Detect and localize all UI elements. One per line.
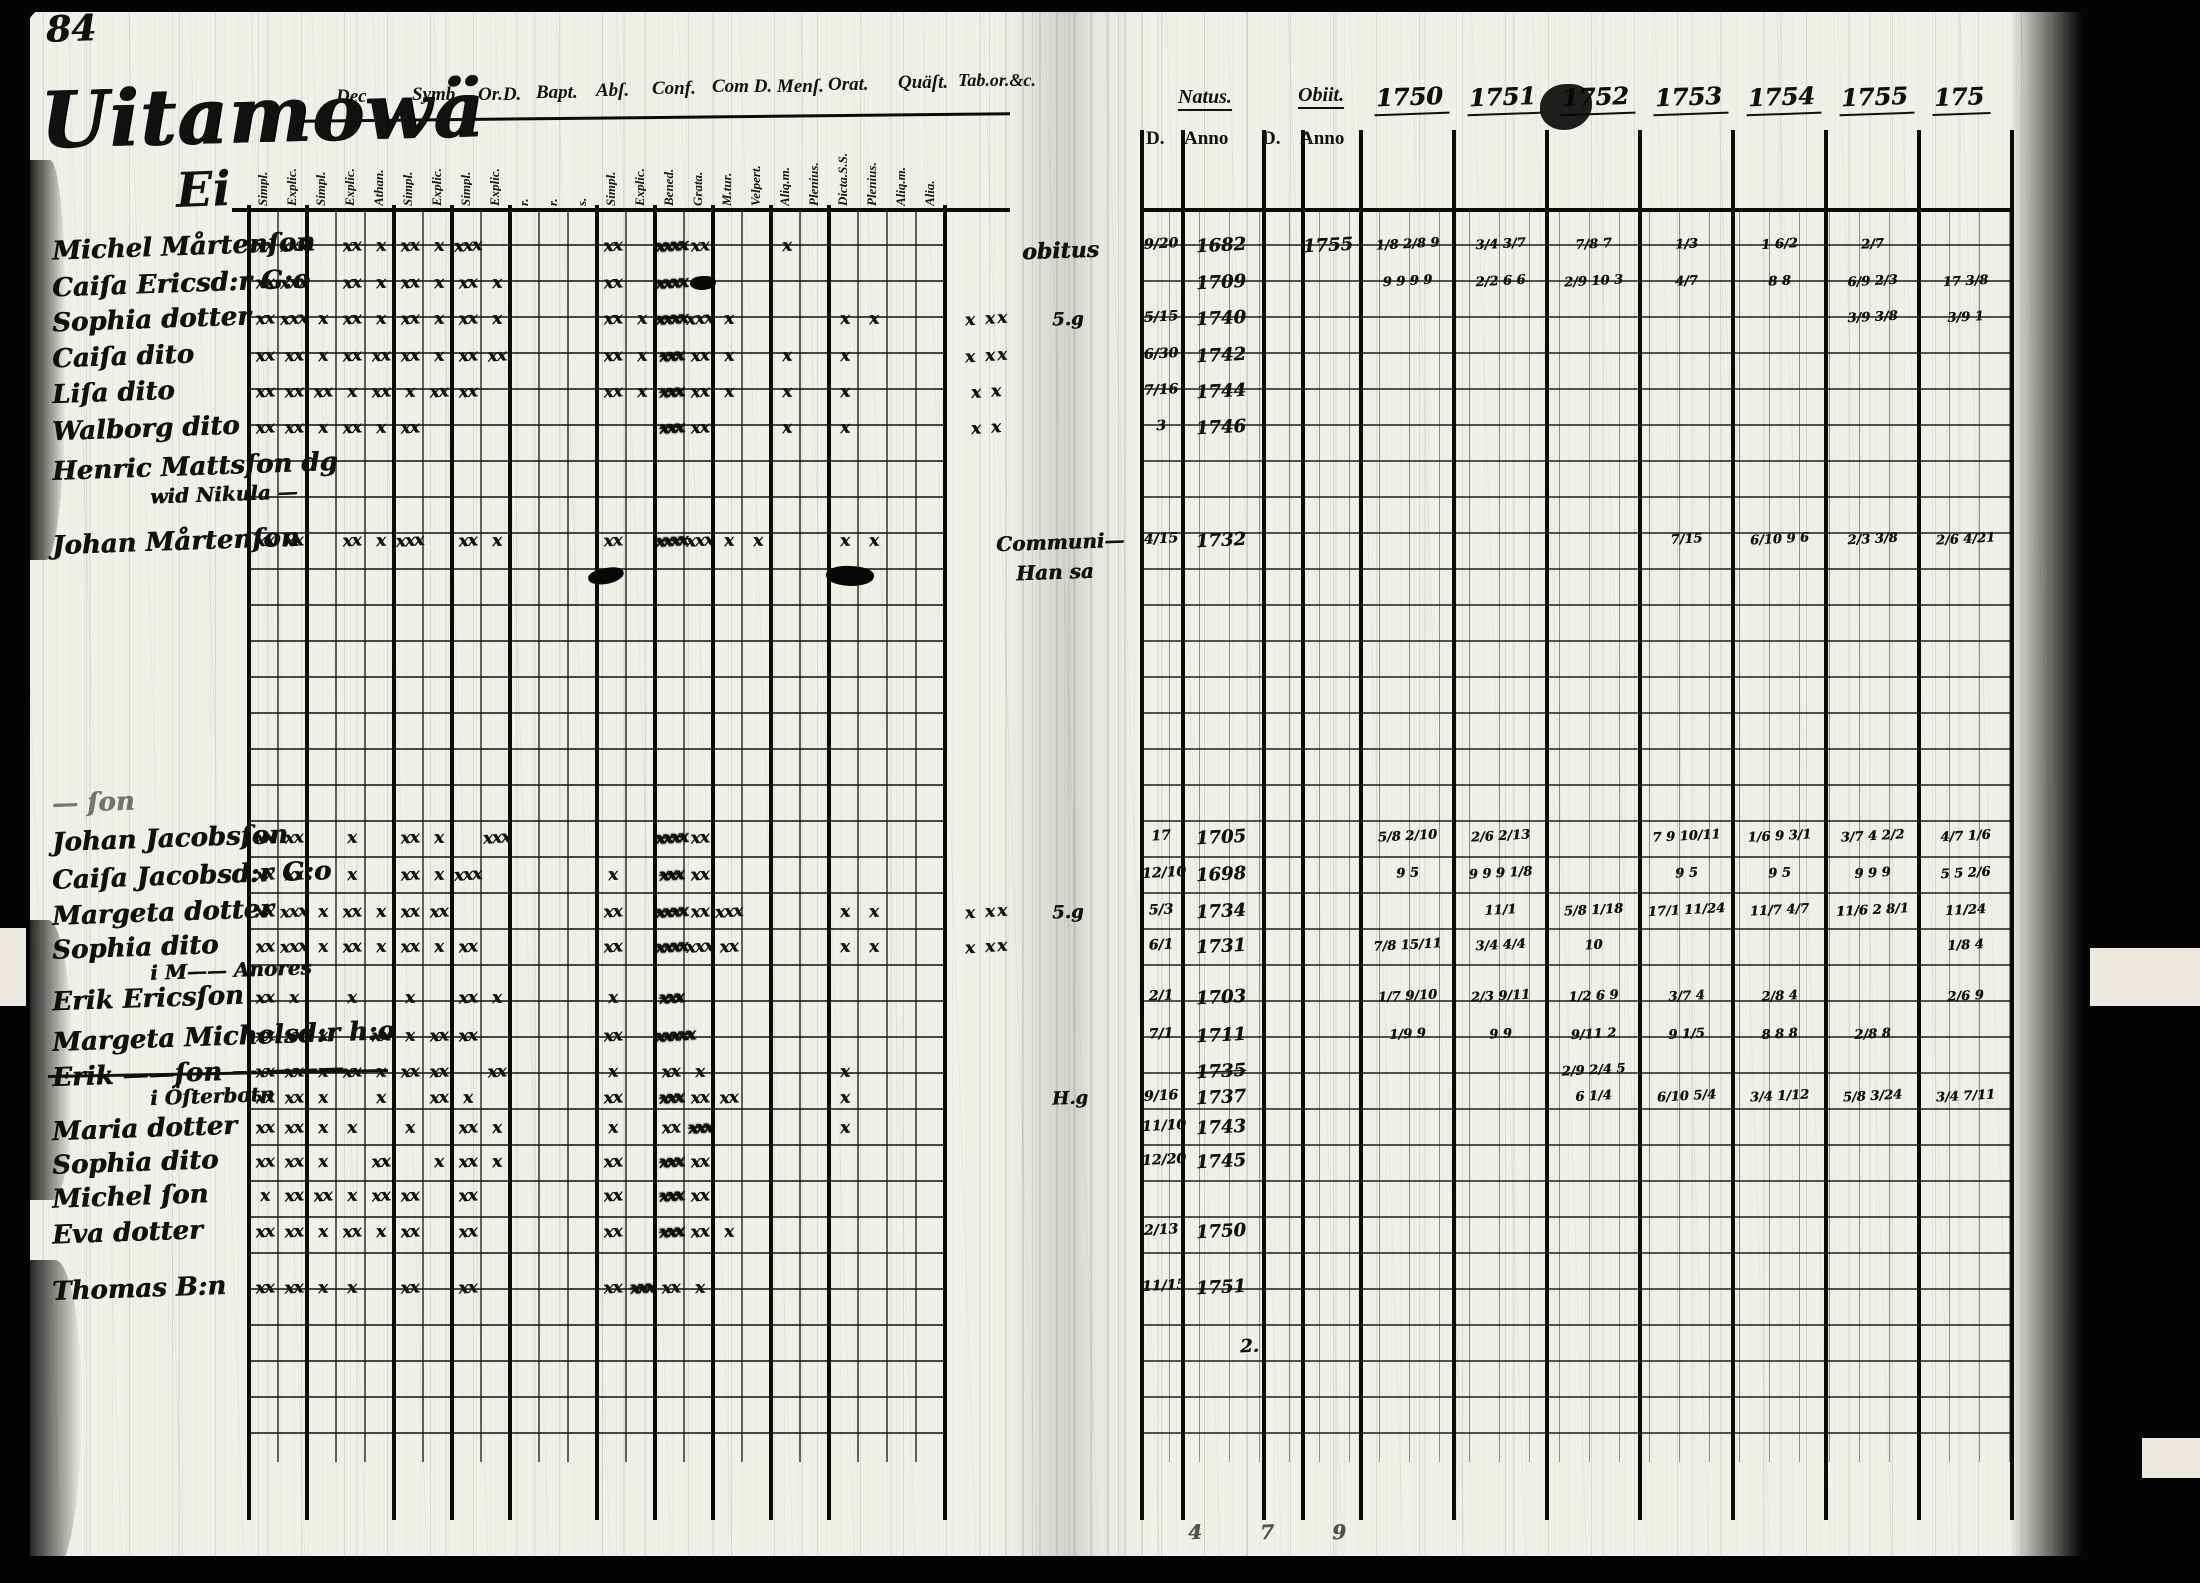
cross-marks: x xyxy=(393,1025,425,1047)
cross-marks: x xyxy=(857,530,889,552)
grid-rule-vertical xyxy=(1731,130,1735,1520)
header-obiit-anno: Anno xyxy=(1300,128,1344,150)
cross-marks: xxx xyxy=(277,308,309,330)
cross-marks: xx xyxy=(364,381,396,403)
page-number: 84 xyxy=(45,7,97,51)
natus-day: 11/10 xyxy=(1142,1117,1181,1135)
cross-marks: x xyxy=(364,272,396,294)
cross-marks: x xyxy=(306,1277,338,1299)
grid-rule-vertical xyxy=(1140,130,1144,1520)
cross-marks: x xyxy=(828,936,860,958)
film-border-bottom xyxy=(0,1556,2200,1583)
cross-marks: x xyxy=(683,1061,715,1083)
cross-marks: xxx xyxy=(277,235,309,257)
record-name: wid Nikula — xyxy=(150,479,298,508)
cross-marks: xx xyxy=(335,1221,367,1243)
cross-marks: x xyxy=(306,1221,338,1243)
cross-marks: x xyxy=(828,901,860,923)
grid-rule-vertical xyxy=(1301,130,1305,1520)
cross-marks: xx xyxy=(393,1061,425,1083)
natus-day: 2/1 xyxy=(1142,987,1181,1005)
cross-marks: xx xyxy=(654,1277,686,1299)
subheader-explic: Explic. xyxy=(430,106,443,206)
header-natus: Natus. xyxy=(1178,86,1232,111)
subheader-aliqm: Aliq.m. xyxy=(778,106,791,206)
cross-marks: xx xyxy=(248,1087,280,1109)
cross-marks: xx xyxy=(683,1151,715,1173)
cross-marks: xx xyxy=(654,1061,686,1083)
obiit-year: 1755 xyxy=(1299,234,1356,258)
cross-marks: x xyxy=(828,381,860,403)
cross-marks: x xyxy=(306,1151,338,1173)
year-header-175: 175 xyxy=(1931,81,1990,116)
grid-rule-vertical xyxy=(1181,130,1185,1520)
year-header-1751: 1751 xyxy=(1466,81,1542,117)
cross-marks: x xyxy=(741,530,773,552)
cross-marks: xx xyxy=(451,272,483,294)
cross-marks: x xyxy=(364,417,396,439)
header-natus-anno: Anno xyxy=(1184,128,1228,150)
cross-marks: xx xyxy=(683,901,715,923)
cross-marks: xxx xyxy=(654,381,686,403)
cross-marks: xx xyxy=(364,345,396,367)
cross-marks: x xyxy=(422,235,454,257)
bottom-margin-mark: 4 xyxy=(1188,1520,1203,1544)
cross-marks: x xyxy=(306,1117,338,1139)
subheader-mtur: M.tur. xyxy=(720,106,733,206)
cross-marks: x xyxy=(596,864,628,886)
cross-marks: xx xyxy=(683,1087,715,1109)
cross-marks: xx xyxy=(683,1185,715,1207)
cross-marks: x xyxy=(422,936,454,958)
cross-marks: x xyxy=(770,345,802,367)
header-ord: Or.D. xyxy=(478,84,521,106)
cross-marks: xxxx xyxy=(654,272,686,294)
cross-marks: xxx xyxy=(480,827,512,849)
natus-day: 5/15 xyxy=(1142,308,1181,326)
communion-note-line1: Communi— xyxy=(996,528,1125,556)
cross-marks: x xyxy=(306,308,338,330)
record-name: — ſon xyxy=(52,787,135,820)
cross-marks: x xyxy=(857,901,889,923)
record-name: Thomas B:n xyxy=(52,1271,227,1307)
subheader-dictass: Dicta.S.S. xyxy=(836,106,849,206)
cross-marks: x xyxy=(306,901,338,923)
cross-marks: x xyxy=(335,987,367,1009)
cross-marks: xx xyxy=(248,936,280,958)
cross-marks: xx xyxy=(335,417,367,439)
cross-marks: xx xyxy=(277,1061,309,1083)
grid-rule-horizontal xyxy=(232,208,1010,212)
cross-marks: xx xyxy=(480,1061,512,1083)
cross-marks: x xyxy=(335,827,367,849)
cross-marks: x xyxy=(364,1221,396,1243)
cross-marks: x xyxy=(422,272,454,294)
cross-marks: xxx xyxy=(451,235,483,257)
natus-year: 1751 xyxy=(1184,1275,1259,1300)
cross-marks: x xyxy=(306,1061,338,1083)
natus-day: 4/15 xyxy=(1142,530,1181,548)
cross-marks: x xyxy=(596,1061,628,1083)
film-border-right xyxy=(2086,0,2200,1583)
grid-rule-vertical xyxy=(1262,130,1266,1520)
cross-marks: xx xyxy=(683,827,715,849)
natus-year: 1745 xyxy=(1184,1149,1259,1174)
cross-marks: x xyxy=(306,1087,338,1109)
cross-marks: xx xyxy=(248,987,280,1009)
cross-marks: xx xyxy=(277,1025,309,1047)
cross-marks: xx xyxy=(277,417,309,439)
cross-marks: x xyxy=(306,345,338,367)
cross-marks: x xyxy=(712,345,744,367)
cross-marks: xxxx xyxy=(654,901,686,923)
cross-marks: xx xyxy=(248,530,280,552)
natus-year: 1711 xyxy=(1184,1023,1259,1048)
subheader-alia: Alia. xyxy=(923,106,936,206)
cross-marks: xx xyxy=(335,272,367,294)
header-tabor: Tab.or.&c. xyxy=(958,70,1036,91)
natus-day: 3 xyxy=(1142,417,1181,435)
cross-marks: x xyxy=(364,235,396,257)
cross-marks: xx xyxy=(248,1117,280,1139)
cross-marks: xx xyxy=(451,987,483,1009)
subheader-explic: Explic. xyxy=(343,106,356,206)
cross-marks: x xyxy=(480,272,512,294)
film-notch xyxy=(0,928,26,1006)
cross-marks: xxxx xyxy=(654,530,686,552)
cross-marks: xx xyxy=(654,1117,686,1139)
grid-rule-vertical xyxy=(508,205,512,1520)
natus-year: 1703 xyxy=(1184,985,1259,1010)
natus-year: 1734 xyxy=(1184,899,1259,924)
cross-marks: x xyxy=(480,308,512,330)
cross-marks: xxxx xyxy=(654,235,686,257)
cross-marks: xx xyxy=(596,1151,628,1173)
cross-marks: xx xyxy=(393,864,425,886)
cross-marks: xx xyxy=(393,901,425,923)
margin-note: H.g xyxy=(1052,1087,1089,1109)
year-header-1754: 1754 xyxy=(1745,81,1821,117)
cross-marks: xx xyxy=(451,1185,483,1207)
bottom-margin-mark: 7 xyxy=(1260,1520,1275,1544)
obiit-note: obitus xyxy=(1022,237,1100,266)
cross-marks: xx xyxy=(277,1277,309,1299)
cross-marks: xx xyxy=(683,864,715,886)
subheader-explic: Explic. xyxy=(633,106,646,206)
cross-marks: x xyxy=(712,1221,744,1243)
cross-marks: x xyxy=(596,1117,628,1139)
cross-marks: xxx xyxy=(654,987,686,1009)
cross-marks: x xyxy=(828,417,860,439)
cross-marks: xx xyxy=(712,936,744,958)
cross-marks: xx xyxy=(596,235,628,257)
cross-marks: xx xyxy=(596,1277,628,1299)
cross-marks: xx xyxy=(393,345,425,367)
cross-marks: xx xyxy=(335,235,367,257)
subheader-simpl: Simpl. xyxy=(604,106,617,206)
cross-marks: xx xyxy=(335,901,367,923)
natus-day: 12/20 xyxy=(1142,1151,1181,1169)
subheader-velpert: Velpert. xyxy=(749,106,762,206)
film-border-left xyxy=(0,0,30,1583)
cross-marks: x xyxy=(335,1185,367,1207)
microfilm-scan: Dec. Symb. Or.D. Bapt. Abſ. Conf. Com D.… xyxy=(0,0,2200,1583)
natus-year: 1746 xyxy=(1184,415,1259,440)
cross-marks: x xyxy=(306,417,338,439)
cross-marks: x xyxy=(364,901,396,923)
cross-marks: x xyxy=(393,381,425,403)
cross-marks: xx xyxy=(248,1061,280,1083)
cross-marks: xx xyxy=(248,1025,280,1047)
cross-marks: xx xyxy=(248,827,280,849)
cross-marks: xx xyxy=(277,1151,309,1173)
cross-marks: x xyxy=(625,308,657,330)
cross-marks: x xyxy=(625,345,657,367)
natus-year: 1750 xyxy=(1184,1219,1259,1244)
natus-year: 1731 xyxy=(1184,934,1259,959)
year-header-1750: 1750 xyxy=(1373,81,1449,117)
cross-marks: x xyxy=(480,530,512,552)
natus-day: 7/16 xyxy=(1142,381,1181,399)
cross-marks: x xyxy=(422,864,454,886)
cross-marks: x xyxy=(422,345,454,367)
cross-marks: xx xyxy=(335,530,367,552)
cross-marks: xx xyxy=(451,381,483,403)
cross-marks: x xyxy=(770,235,802,257)
cross-marks: xx xyxy=(277,1185,309,1207)
natus-day: 6/1 xyxy=(1142,936,1181,954)
page-title-line2: Ei xyxy=(175,161,232,219)
cross-marks: x xyxy=(364,1087,396,1109)
cross-marks: xx xyxy=(393,827,425,849)
cross-marks: x xyxy=(335,1277,367,1299)
cross-marks: xx xyxy=(422,1061,454,1083)
cross-marks: x xyxy=(857,308,889,330)
grid-rule-vertical xyxy=(1638,130,1642,1520)
cross-marks: xx xyxy=(306,381,338,403)
cross-marks: xx xyxy=(277,1087,309,1109)
cross-marks: x xyxy=(828,1061,860,1083)
cross-marks: xx xyxy=(335,345,367,367)
subheader-bened: Bened. xyxy=(662,106,675,206)
cross-marks: x xyxy=(364,1061,396,1083)
film-notch xyxy=(2090,948,2200,1006)
subheader-explic: Explic. xyxy=(285,106,298,206)
natus-day: 9/16 xyxy=(1142,1087,1181,1105)
header-obiit: Obiit. xyxy=(1298,84,1344,109)
cross-marks: x xyxy=(625,381,657,403)
natus-year: 1737 xyxy=(1184,1085,1259,1110)
cross-marks: xxx xyxy=(277,901,309,923)
cross-marks: x xyxy=(828,530,860,552)
natus-year: 1740 xyxy=(1184,306,1259,331)
subheader-plenius: Plenius. xyxy=(865,106,878,206)
grid-rule-horizontal xyxy=(1140,208,2014,212)
cross-marks: x xyxy=(306,1025,338,1047)
cross-marks: x xyxy=(277,987,309,1009)
subheader-s: s. xyxy=(575,106,588,206)
grid-rule-vertical xyxy=(1545,130,1549,1520)
cross-marks: xx xyxy=(596,1025,628,1047)
natus-year: 1732 xyxy=(1184,528,1259,553)
natus-day: 17 xyxy=(1142,827,1181,845)
film-notch xyxy=(2142,1438,2200,1478)
cross-marks: x xyxy=(335,381,367,403)
cross-marks: xx xyxy=(364,1185,396,1207)
cross-marks: xx xyxy=(596,1185,628,1207)
natus-day: 2/13 xyxy=(1142,1221,1181,1239)
record-name: Eva dotter xyxy=(52,1215,204,1250)
cross-marks: xx xyxy=(683,345,715,367)
cross-marks: xx xyxy=(393,308,425,330)
cross-marks: x xyxy=(364,936,396,958)
natus-day: 5/3 xyxy=(1142,901,1181,919)
cross-marks: xxx xyxy=(683,936,715,958)
natus-year: 1742 xyxy=(1184,343,1259,368)
cross-marks: xx xyxy=(712,1087,744,1109)
cross-marks: x xyxy=(712,530,744,552)
natus-day: 6/30 xyxy=(1142,345,1181,363)
cross-marks: xx xyxy=(277,381,309,403)
grid-rule-vertical xyxy=(943,205,947,1520)
cross-marks: xxxxx xyxy=(654,1025,686,1047)
cross-marks: x xyxy=(828,308,860,330)
cross-marks: xx xyxy=(451,1151,483,1173)
cross-marks: xx xyxy=(422,1087,454,1109)
natus-year: 1698 xyxy=(1184,862,1259,887)
cross-marks: x xyxy=(422,827,454,849)
cross-marks: x xyxy=(393,1117,425,1139)
record-name: Caiſa dito xyxy=(52,340,195,375)
record-name: Liſa dito xyxy=(52,376,176,410)
cross-marks: xx xyxy=(248,381,280,403)
cross-marks: xx xyxy=(451,530,483,552)
cross-marks: xx xyxy=(248,864,280,886)
cross-marks: x xyxy=(770,381,802,403)
cross-marks: xx xyxy=(451,345,483,367)
cross-marks: xx xyxy=(451,1221,483,1243)
margin-note: 5.g xyxy=(1052,308,1084,330)
natus-day: 7/1 xyxy=(1142,1025,1181,1043)
cross-marks: xxx xyxy=(683,530,715,552)
cross-marks: x xyxy=(422,308,454,330)
cross-marks: xx xyxy=(683,381,715,403)
subheader-simpl: Simpl. xyxy=(256,106,269,206)
cross-marks: xx xyxy=(277,530,309,552)
cross-marks: xx xyxy=(683,235,715,257)
cross-marks: x xyxy=(683,1277,715,1299)
cross-marks: xx xyxy=(248,308,280,330)
header-obiit-d: D. xyxy=(1262,128,1280,150)
cross-marks: x xyxy=(596,987,628,1009)
cross-marks: xx xyxy=(393,235,425,257)
cross-marks: xx xyxy=(248,417,280,439)
grid-rule-vertical xyxy=(1917,130,1921,1520)
cross-marks: xx xyxy=(335,1061,367,1083)
cross-marks: xx xyxy=(596,381,628,403)
header-natus-d: D. xyxy=(1146,128,1164,150)
cross-marks: xxxx xyxy=(654,936,686,958)
cross-marks: xx xyxy=(422,1025,454,1047)
cross-marks: xx xyxy=(248,1151,280,1173)
cross-marks: xx xyxy=(422,901,454,923)
cross-marks: x xyxy=(451,1087,483,1109)
cross-marks: xx xyxy=(451,308,483,330)
cross-marks: xx xyxy=(277,827,309,849)
cross-marks: x xyxy=(335,1117,367,1139)
subheader-explic: Explic. xyxy=(488,106,501,206)
stray-mark: 2. xyxy=(1240,1336,1260,1358)
cross-marks: xxxx xyxy=(654,827,686,849)
cross-marks: x xyxy=(712,308,744,330)
cross-marks: xxx xyxy=(712,901,744,923)
cross-marks: xx xyxy=(335,936,367,958)
cross-marks: xxx xyxy=(683,308,715,330)
cross-marks: xx xyxy=(596,1087,628,1109)
cross-marks: xxx xyxy=(654,1087,686,1109)
cross-marks: xxx xyxy=(683,1117,715,1139)
cross-marks: x xyxy=(770,417,802,439)
cross-marks: xx xyxy=(277,1221,309,1243)
cross-marks: xx xyxy=(393,417,425,439)
cross-marks: xxx xyxy=(451,864,483,886)
subheader-simpl: Simpl. xyxy=(459,106,472,206)
cross-marks: xx xyxy=(335,308,367,330)
subheader-simpl: Simpl. xyxy=(314,106,327,206)
cross-marks: xx xyxy=(422,381,454,403)
cross-marks: xx xyxy=(596,345,628,367)
cross-marks: xx xyxy=(451,1277,483,1299)
subheader-plenius: Plenius. xyxy=(807,106,820,206)
natus-day: 11/15 xyxy=(1142,1277,1181,1295)
communion-note-line2: Han sa xyxy=(1016,559,1094,586)
cross-marks: x xyxy=(828,345,860,367)
cross-marks: xx xyxy=(364,1025,396,1047)
cross-marks: xxx xyxy=(625,1277,657,1299)
cross-marks: x xyxy=(364,308,396,330)
grid-rule-vertical xyxy=(1452,130,1456,1520)
subheader-athan: Athan. xyxy=(372,106,385,206)
natus-year: 1743 xyxy=(1184,1115,1259,1140)
grid-rule-vertical xyxy=(1824,130,1828,1520)
header-bapt: Bapt. xyxy=(536,82,578,104)
cross-marks: xx xyxy=(393,1185,425,1207)
cross-marks: xx xyxy=(683,417,715,439)
natus-year: 1709 xyxy=(1184,270,1259,295)
cross-marks: xx xyxy=(277,345,309,367)
cross-marks: xx xyxy=(393,936,425,958)
grid-rule-vertical xyxy=(1359,130,1363,1520)
cross-marks: xx xyxy=(277,1117,309,1139)
header-conf: Conf. xyxy=(652,78,696,100)
cross-marks: xx xyxy=(248,1221,280,1243)
subheader-r: r. xyxy=(517,106,530,206)
cross-marks: xx xyxy=(364,1151,396,1173)
cross-marks: xxxx xyxy=(654,308,686,330)
cross-marks: xx xyxy=(596,272,628,294)
header-comd-mens: Com D. Menſ. xyxy=(712,76,824,98)
cross-marks: x xyxy=(335,864,367,886)
natus-year: 1682 xyxy=(1184,233,1259,258)
cross-marks: xxx xyxy=(654,864,686,886)
cross-marks: xx xyxy=(248,235,280,257)
natus-year: 1744 xyxy=(1184,379,1259,404)
cross-marks: x xyxy=(480,1117,512,1139)
subheader-aliqm: Aliq.m. xyxy=(894,106,907,206)
cross-marks: x xyxy=(828,1087,860,1109)
cross-marks: xxx xyxy=(654,1221,686,1243)
natus-year: 1735 xyxy=(1184,1059,1259,1084)
